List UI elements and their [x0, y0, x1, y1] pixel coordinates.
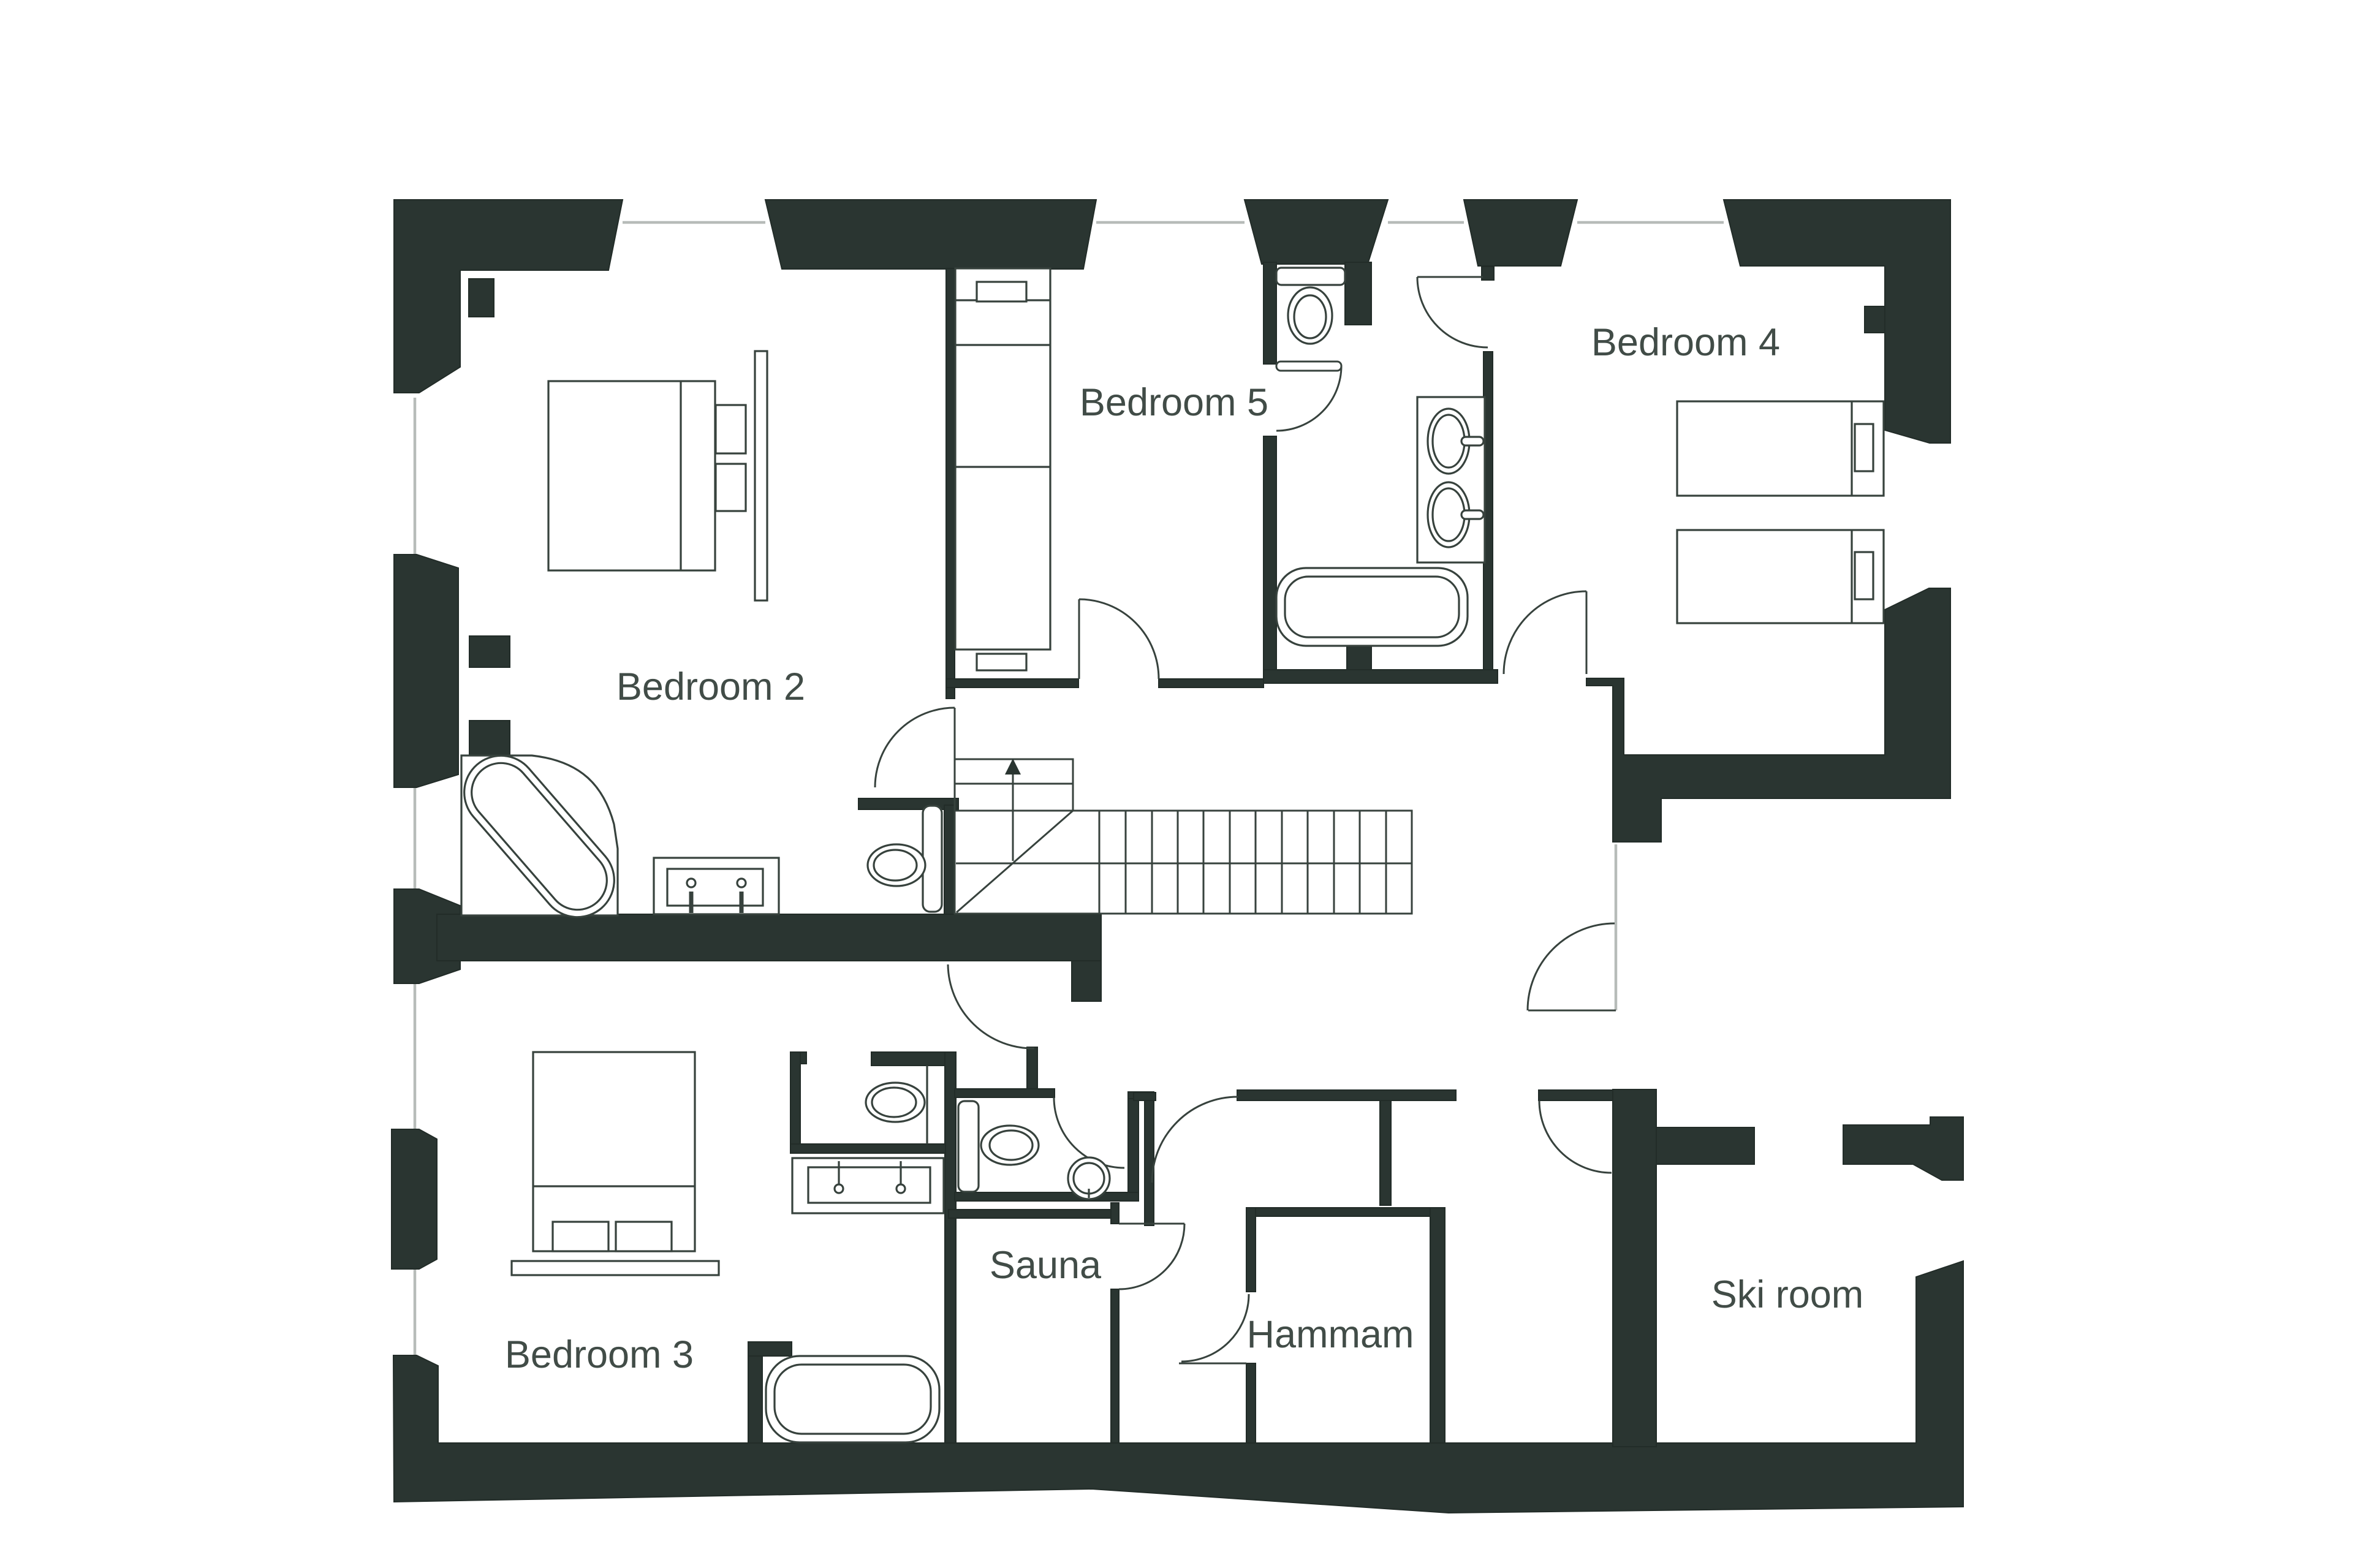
- svg-text:Ski room: Ski room: [1711, 1273, 1864, 1316]
- svg-text:Bedroom 4: Bedroom 4: [1591, 321, 1780, 364]
- svg-text:Bedroom 2: Bedroom 2: [616, 665, 805, 708]
- svg-text:Sauna: Sauna: [990, 1244, 1102, 1287]
- svg-text:Hammam: Hammam: [1246, 1313, 1414, 1356]
- svg-text:Bedroom 3: Bedroom 3: [505, 1333, 694, 1376]
- svg-text:Bedroom 5: Bedroom 5: [1080, 381, 1268, 424]
